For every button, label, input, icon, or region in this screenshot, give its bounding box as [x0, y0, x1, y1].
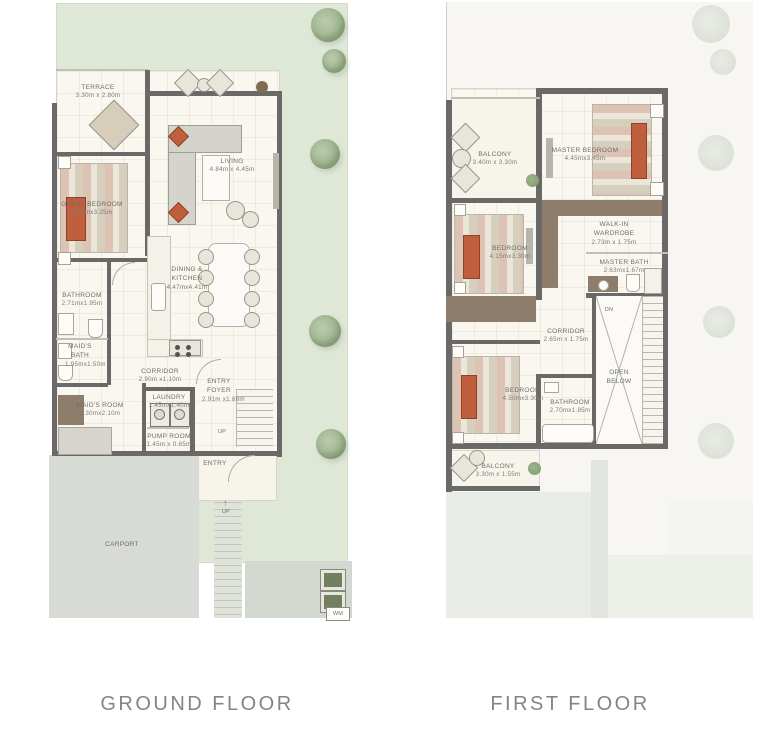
- room-dims: 3.30m x 1.55m: [458, 471, 538, 480]
- room-label-bathroom: BATHROOM 2.71mx1.95m: [50, 291, 114, 309]
- room-dims: 1.45mx1.40m: [144, 402, 194, 411]
- room-dims: 4.47mx4.41m: [165, 284, 209, 293]
- nightstand: [58, 156, 71, 169]
- room-name: BEDROOM: [483, 386, 563, 395]
- nightstand: [452, 346, 464, 358]
- room-name: GUEST BEDROOM: [52, 200, 132, 209]
- up-text: UP: [214, 509, 238, 517]
- room-label-balcony-bottom: BALCONY 3.30m x 1.55m: [458, 462, 538, 480]
- wall-segment: [52, 383, 108, 387]
- nightstand: [454, 204, 466, 216]
- room-label-living: LIVING 4.84m x 4.45m: [192, 157, 272, 175]
- roof-below: [446, 492, 591, 618]
- dining-chair: [198, 249, 214, 265]
- room-name: WALK-IN WARDROBE: [588, 220, 640, 239]
- room-label-corridor: CORRIDOR 2.90m x1.10m: [130, 367, 190, 385]
- toilet-fixture: [626, 274, 640, 292]
- room-dims: 2.65m x 1.75m: [526, 336, 606, 345]
- room-label-bathroom: BATHROOM 2.70mx1.85m: [538, 398, 602, 416]
- wall-segment: [277, 91, 282, 457]
- wall-segment: [56, 69, 148, 71]
- room-name: MAID'S ROOM: [60, 401, 140, 410]
- room-label-master-bedroom: MASTER BEDROOM 4.45mx3.45m: [545, 146, 625, 164]
- bed-runner: [631, 123, 647, 179]
- sink-fixture: [58, 313, 74, 335]
- nightstand: [650, 104, 664, 118]
- plot-boundary-line: [446, 2, 447, 100]
- wardrobe: [446, 296, 536, 322]
- room-name: ENTRY: [185, 459, 245, 468]
- bathtub-fixture: [542, 424, 594, 443]
- ground-floor-plan: WM TERRACE 3.30m x 2.80m GUEST BEDROOM 4…: [50, 3, 352, 620]
- room-label-entry-foyer: ENTRY FOYER 2.91m x1.88m: [202, 377, 236, 405]
- room-label-bedroom-mid: BEDROOM 4.15mx3.30m: [470, 244, 550, 262]
- sink-fixture: [598, 280, 609, 291]
- room-name: BATHROOM: [538, 398, 602, 407]
- up-arrow-icon: ↑: [223, 499, 228, 508]
- burner-icon: [175, 345, 180, 350]
- room-label-entry: ENTRY: [185, 459, 245, 468]
- room-name: MASTER BATH: [586, 258, 662, 267]
- dn-text: DN: [596, 307, 622, 315]
- toilet-fixture: [88, 319, 103, 338]
- room-dims: 4.45mx3.45m: [545, 155, 625, 164]
- room-label-pump-room: PUMP ROOM 1.45m x 0.65m: [142, 432, 196, 450]
- wall-segment: [536, 374, 594, 378]
- tv-console: [273, 153, 279, 209]
- wall-segment: [451, 97, 540, 99]
- tree-icon: [322, 49, 346, 73]
- dining-chair: [198, 312, 214, 328]
- room-name: BALCONY: [458, 462, 538, 471]
- dn-label: DN: [596, 307, 622, 315]
- floorplan-canvas: WM TERRACE 3.30m x 2.80m GUEST BEDROOM 4…: [0, 0, 768, 750]
- wall-segment: [145, 387, 193, 391]
- room-dims: 2.91m x1.88m: [202, 396, 236, 405]
- dining-chair: [244, 270, 260, 286]
- room-name: OPEN BELOW: [602, 368, 636, 387]
- tree-icon: [310, 139, 340, 169]
- room-name: BALCONY: [455, 150, 535, 159]
- nightstand: [650, 182, 664, 196]
- up-label-walkway: UP: [214, 509, 238, 517]
- room-dims: 3.40m x 3.30m: [455, 159, 535, 168]
- wm-label: WM: [327, 608, 349, 620]
- wall-segment: [56, 338, 108, 340]
- stairs: [642, 296, 663, 444]
- outdoor-stairs: [214, 502, 242, 618]
- nightstand: [58, 252, 71, 265]
- room-name: CORRIDOR: [526, 327, 606, 336]
- room-dims: 3.30m x 2.80m: [58, 92, 138, 101]
- dining-chair: [244, 312, 260, 328]
- wall-segment: [586, 252, 668, 254]
- room-name: MASTER BEDROOM: [545, 146, 625, 155]
- room-name: BATHROOM: [50, 291, 114, 300]
- room-name: DINING & KITCHEN: [165, 265, 209, 284]
- room-label-dining-kitchen: DINING & KITCHEN 4.47mx4.41m: [165, 265, 209, 293]
- room-name: TERRACE: [58, 83, 138, 92]
- room-dims: 1.95mx1.50m: [65, 361, 95, 370]
- room-dims: 2.70mx1.85m: [538, 407, 602, 416]
- nightstand: [454, 282, 466, 294]
- wardrobe: [542, 200, 662, 216]
- wall-segment: [446, 198, 540, 203]
- room-label-balcony-top: BALCONY 3.40m x 3.30m: [455, 150, 535, 168]
- room-dims: 2.90m x1.10m: [130, 376, 190, 385]
- kitchen-sink: [151, 283, 166, 311]
- room-dims: 3.30mx2.10m: [60, 410, 140, 419]
- room-label-maids-room: MAID'S ROOM 3.30mx2.10m: [60, 401, 140, 419]
- room-name: CARPORT: [82, 540, 162, 549]
- stove: [169, 340, 201, 356]
- roof-strip: [591, 460, 608, 618]
- dining-chair: [244, 291, 260, 307]
- wall-segment: [107, 258, 111, 385]
- planter: [320, 569, 346, 591]
- potted-plant-icon: [526, 174, 539, 187]
- bed-furniture: [58, 427, 112, 455]
- room-name: ENTRY FOYER: [202, 377, 236, 396]
- room-name: LIVING: [192, 157, 272, 166]
- room-label-maids-bath: MAID'S BATH 1.95mx1.50m: [65, 342, 95, 370]
- first-floor-caption: FIRST FLOOR: [490, 693, 649, 716]
- tree-icon: [309, 315, 341, 347]
- room-label-laundry: LAUNDRY 1.45mx1.40m: [144, 393, 194, 411]
- planter-green: [324, 573, 342, 587]
- room-dims: 4.15mx3.30m: [470, 253, 550, 262]
- bed-runner: [461, 375, 477, 419]
- nightstand: [452, 432, 464, 444]
- up-label-stairs: UP: [210, 429, 234, 437]
- room-label-carport: CARPORT: [82, 540, 162, 549]
- carport-slab: [49, 455, 199, 618]
- meter-box: WM: [326, 607, 350, 621]
- room-label-corridor: CORRIDOR 2.65m x 1.75m: [526, 327, 606, 345]
- room-name: BEDROOM: [470, 244, 550, 253]
- tree-icon: [311, 8, 345, 42]
- room-name: CORRIDOR: [130, 367, 190, 376]
- dining-chair: [244, 249, 260, 265]
- tree-icon: [698, 135, 734, 171]
- wall-segment: [536, 88, 542, 204]
- pouf: [242, 211, 259, 228]
- paving-below: [608, 555, 753, 618]
- room-name: PUMP ROOM: [142, 432, 196, 441]
- ground-floor-caption: GROUND FLOOR: [100, 693, 293, 716]
- tree-icon: [703, 306, 735, 338]
- room-dims: 2.63mx1.67m: [586, 267, 662, 276]
- room-label-walk-in-wardrobe: WALK-IN WARDROBE 2.73m x 1.75m: [588, 220, 640, 248]
- wall-segment: [147, 427, 189, 429]
- potted-plant-icon: [256, 81, 268, 93]
- room-label-guest-bedroom: GUEST BEDROOM 4.40mx3.25m: [52, 200, 132, 218]
- first-floor-plan: BALCONY 3.40m x 3.30m MASTER BEDROOM 4.4…: [446, 2, 753, 618]
- tree-icon: [698, 423, 734, 459]
- room-label-open-below: OPEN BELOW: [602, 368, 636, 387]
- dining-chair: [198, 291, 214, 307]
- room-label-master-bath: MASTER BATH 2.63mx1.67m: [586, 258, 662, 276]
- room-name: MAID'S BATH: [65, 342, 95, 361]
- room-dims: 2.71mx1.95m: [50, 300, 114, 309]
- room-dims: 4.40mx3.25m: [52, 209, 132, 218]
- room-dims: 4.84m x 4.45m: [192, 166, 272, 175]
- wall-segment: [540, 88, 668, 94]
- room-label-terrace: TERRACE 3.30m x 2.80m: [58, 83, 138, 101]
- tree-icon: [692, 5, 730, 43]
- room-dims: 1.45m x 0.65m: [142, 441, 196, 450]
- room-dims: 2.73m x 1.75m: [588, 239, 640, 248]
- tree-icon: [710, 49, 736, 75]
- paving-below: [668, 502, 753, 555]
- wall-segment: [446, 486, 540, 491]
- up-text: UP: [210, 429, 234, 437]
- room-name: LAUNDRY: [144, 393, 194, 402]
- tree-icon: [316, 429, 346, 459]
